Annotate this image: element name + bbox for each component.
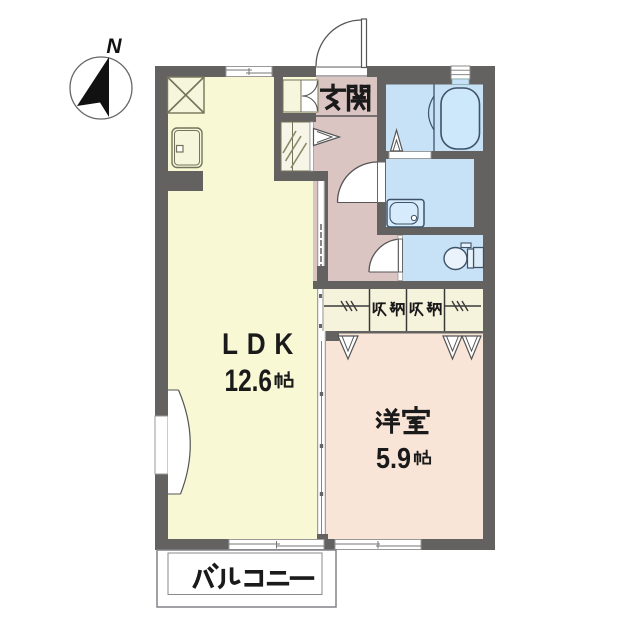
svg-text:LDK: LDK bbox=[222, 328, 302, 361]
svg-text:12.6: 12.6 bbox=[225, 363, 273, 398]
svg-text:5.9: 5.9 bbox=[376, 443, 411, 475]
svg-text:N: N bbox=[106, 35, 122, 58]
